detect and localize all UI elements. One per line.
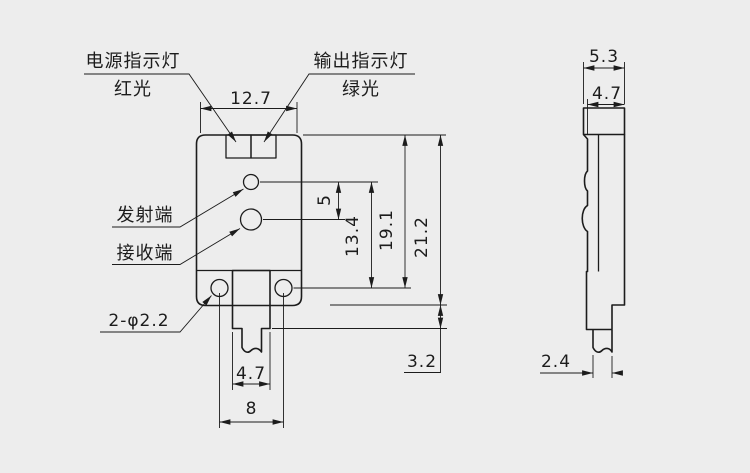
label-output-indicator-line1: 输出指示灯 bbox=[314, 51, 409, 72]
dim-label-overall-depth: 5.3 bbox=[589, 47, 619, 67]
label-power-indicator-line2: 红光 bbox=[114, 79, 152, 100]
dim-label-lens-spacing: 5 bbox=[315, 194, 335, 206]
front-view bbox=[197, 135, 302, 352]
sensor-dimension-drawing: 电源指示灯 红光 输出指示灯 绿光 发射端 接收端 2-φ2.2 12.7 5 … bbox=[0, 0, 750, 473]
label-output-indicator-line2: 绿光 bbox=[342, 79, 380, 100]
dim-label-tab-below-body: 3.2 bbox=[407, 352, 437, 372]
dim-label-hole-spacing: 8 bbox=[246, 399, 258, 419]
dim-label-top-width: 12.7 bbox=[230, 89, 272, 109]
dim-label-top-to-hole: 19.1 bbox=[377, 209, 397, 251]
leader-output-indicator bbox=[264, 74, 415, 142]
label-receiver: 接收端 bbox=[117, 243, 174, 264]
dim-body-depth bbox=[588, 99, 625, 135]
receiver-lens-circle bbox=[241, 209, 262, 230]
dim-label-tab-width: 4.7 bbox=[236, 364, 266, 384]
label-emitter: 发射端 bbox=[117, 205, 174, 226]
dim-label-body-height: 21.2 bbox=[412, 216, 432, 258]
side-profile-outline bbox=[582, 135, 624, 330]
emitter-lens-circle bbox=[244, 175, 259, 190]
side-view bbox=[582, 108, 624, 352]
leader-lines bbox=[84, 74, 415, 332]
dim-label-emitter-to-hole: 13.4 bbox=[343, 215, 363, 257]
indicator-window-right bbox=[251, 135, 276, 158]
mounting-tab-and-cable bbox=[233, 271, 271, 353]
side-cable bbox=[593, 330, 612, 353]
label-power-indicator-line1: 电源指示灯 bbox=[86, 51, 181, 72]
annotations: 电源指示灯 红光 输出指示灯 绿光 发射端 接收端 2-φ2.2 12.7 5 … bbox=[86, 47, 623, 419]
label-mounting-holes: 2-φ2.2 bbox=[108, 311, 169, 331]
leader-power-indicator bbox=[84, 74, 236, 142]
indicator-window-left bbox=[226, 135, 251, 158]
dim-label-body-depth: 4.7 bbox=[592, 84, 622, 104]
dim-label-cable-width: 2.4 bbox=[541, 352, 571, 372]
side-top-cap bbox=[584, 108, 625, 135]
